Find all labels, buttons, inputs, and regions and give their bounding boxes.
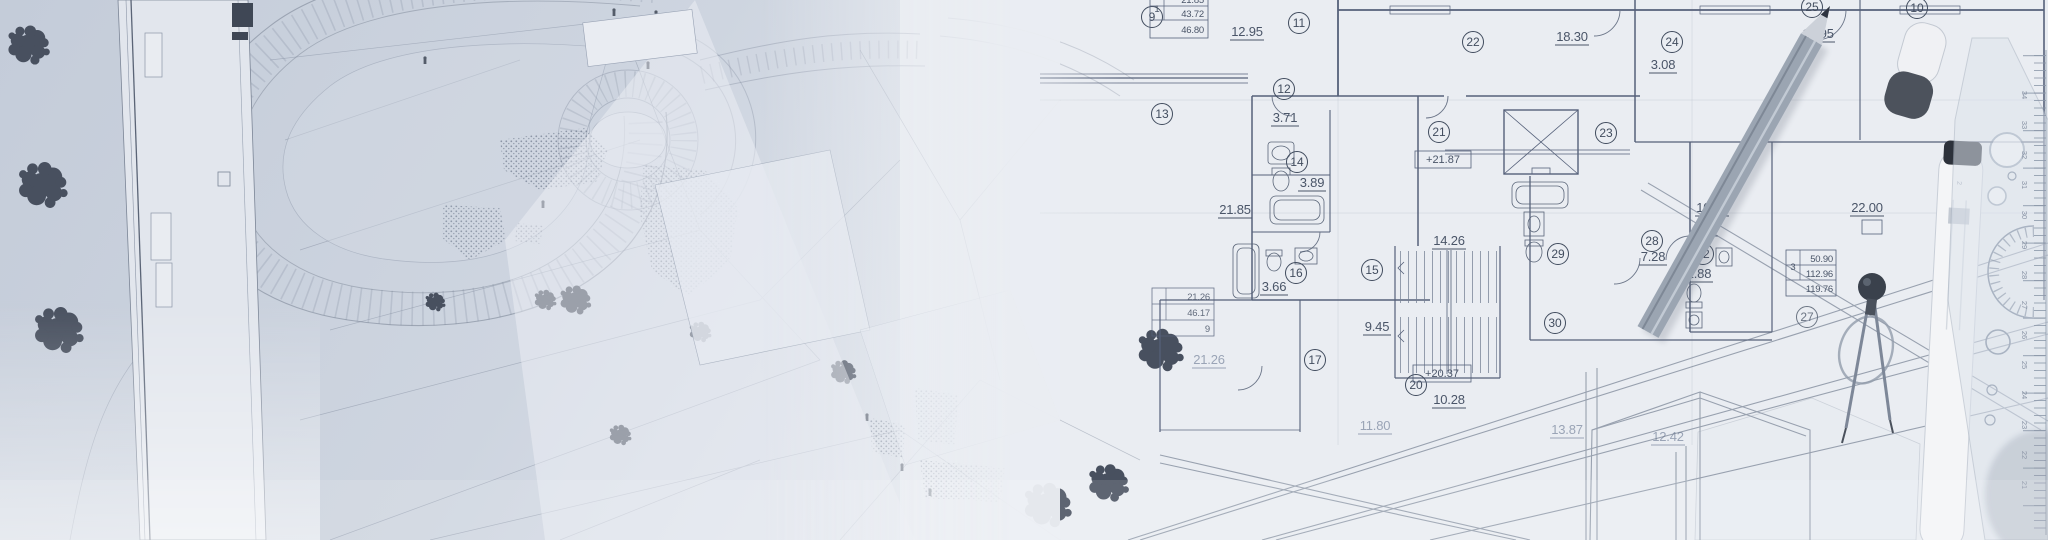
area-label: 12.42 [1652, 429, 1684, 444]
area-label: 13.87 [1551, 422, 1583, 437]
area-label: 7.28 [1641, 249, 1666, 264]
room-number: 25 [1805, 0, 1819, 14]
room-number: 15 [1365, 263, 1379, 277]
unit-area-value: 9 [1205, 324, 1210, 335]
site-fade [700, 0, 1060, 540]
area-label: 12.95 [1231, 24, 1263, 39]
unit-area-value: 119.76 [1806, 284, 1833, 295]
unit-number: 3 [1790, 262, 1795, 273]
unit-area-value: 21.85 [1181, 0, 1204, 6]
ruler-number: 32 [2020, 151, 2029, 159]
area-label: 3.66 [1262, 279, 1287, 294]
ruler-number: 31 [2020, 181, 2029, 189]
unit-area-value: 46.80 [1181, 25, 1204, 36]
room-number: 14 [1290, 155, 1304, 169]
blueprint-scene: 9 11 22 24 25 10 12 13 14 21 23 16 15 29… [0, 0, 2048, 540]
bottom-fade [0, 480, 2048, 540]
room-number: 23 [1599, 126, 1613, 140]
unit-area-value: 46.17 [1187, 308, 1210, 319]
ruler-number: 34 [2020, 91, 2029, 99]
area-label: 3.71 [1273, 110, 1298, 125]
room-number: 11 [1293, 16, 1306, 30]
unit-area-value: 112.96 [1806, 269, 1833, 280]
area-label: 11.80 [1360, 418, 1391, 433]
room-number: 30 [1548, 316, 1562, 330]
ruler-number: 29 [2020, 241, 2029, 249]
room-number: 29 [1551, 247, 1565, 261]
unit-area-value: 50.90 [1810, 254, 1833, 265]
room-number: 20 [1409, 378, 1423, 392]
elevation-mark: +20.37 [1425, 368, 1459, 380]
area-label: 18.30 [1556, 29, 1588, 44]
area-label: 22.00 [1851, 200, 1883, 215]
area-label: 3.89 [1300, 175, 1325, 190]
ruler-number: 25 [2020, 361, 2029, 369]
area-label: 21.85 [1219, 202, 1251, 217]
room-number: 22 [1466, 35, 1480, 49]
unit-area-value: 43.72 [1181, 9, 1204, 20]
room-number: 16 [1289, 266, 1303, 280]
ruler-number: 23 [2020, 421, 2029, 429]
area-label: 10.28 [1433, 392, 1465, 407]
room-number: 12 [1277, 82, 1291, 96]
ruler-number: 27 [2020, 301, 2029, 309]
room-number: 21 [1432, 125, 1446, 139]
ruler-number: 30 [2020, 211, 2029, 219]
room-number: 17 [1308, 353, 1322, 367]
ruler-number: 28 [2020, 271, 2029, 279]
compass-knob [1858, 273, 1886, 301]
ruler-number: 24 [2020, 391, 2029, 399]
room-number: 28 [1645, 234, 1659, 248]
ruler-number: 33 [2020, 121, 2029, 129]
room-number: 24 [1665, 35, 1679, 49]
unit-number: 1 [1154, 4, 1159, 15]
area-label: 21.26 [1193, 352, 1225, 367]
room-number: 13 [1155, 107, 1169, 121]
ruler-number: 26 [2020, 331, 2029, 339]
area-label: 9.45 [1365, 319, 1390, 334]
area-label: 3.08 [1651, 57, 1676, 72]
unit-area-value: 21.26 [1187, 292, 1210, 303]
room-number: 10 [1910, 1, 1924, 15]
architectural-blueprint-banner: 9 11 22 24 25 10 12 13 14 21 23 16 15 29… [0, 0, 2048, 540]
area-label: 14.26 [1433, 233, 1465, 248]
elevation-mark: +21.87 [1426, 154, 1460, 166]
